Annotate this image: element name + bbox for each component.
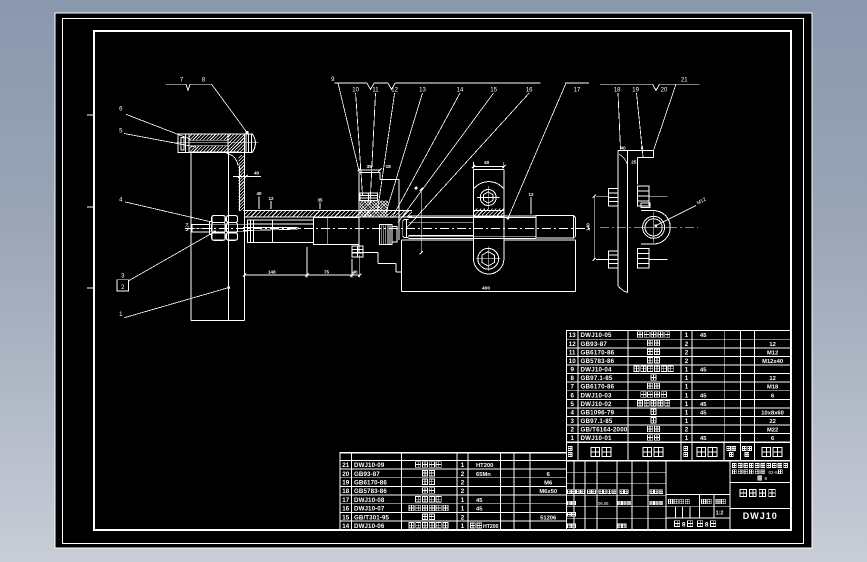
svg-text:35: 35 [367, 164, 373, 170]
svg-text:12: 12 [769, 342, 775, 348]
svg-text:1: 1 [570, 435, 574, 442]
svg-text:9: 9 [570, 367, 574, 374]
svg-text:17: 17 [342, 497, 349, 504]
svg-text:02-5: 02-5 [769, 470, 779, 475]
svg-text:45: 45 [700, 393, 707, 399]
svg-text:18: 18 [614, 88, 621, 94]
svg-text:1:2: 1:2 [716, 511, 724, 517]
svg-text:M6: M6 [544, 481, 553, 487]
svg-text:06.06: 06.06 [598, 501, 609, 506]
svg-text:12: 12 [769, 376, 775, 382]
svg-text:2: 2 [685, 341, 689, 348]
svg-text:16: 16 [526, 88, 533, 94]
svg-text:12: 12 [391, 88, 398, 94]
svg-text:11: 11 [372, 88, 379, 94]
svg-text:DWJ10-03: DWJ10-03 [581, 392, 613, 399]
svg-text:GB6170-86: GB6170-86 [581, 349, 615, 356]
svg-text:12: 12 [269, 196, 275, 201]
svg-text:8: 8 [641, 145, 644, 150]
svg-text:GB5783-86: GB5783-86 [354, 488, 387, 495]
svg-text:DWJ10-05: DWJ10-05 [581, 332, 613, 339]
svg-text:10: 10 [352, 88, 359, 94]
svg-text:DWJ10-09: DWJ10-09 [354, 462, 385, 469]
svg-text:14: 14 [457, 88, 464, 94]
svg-text:40: 40 [353, 269, 359, 274]
svg-text:M6x50: M6x50 [539, 489, 557, 495]
svg-text:19: 19 [342, 480, 349, 487]
svg-text:18: 18 [386, 164, 392, 170]
svg-text:DWJ10-01: DWJ10-01 [581, 435, 613, 442]
svg-text:13: 13 [419, 88, 426, 94]
svg-text:45: 45 [700, 368, 707, 374]
svg-text:DWJ10-04: DWJ10-04 [581, 367, 613, 374]
svg-text:14: 14 [342, 523, 349, 530]
svg-text:65Mn: 65Mn [476, 472, 491, 478]
svg-text:8: 8 [705, 522, 709, 529]
svg-text:2: 2 [461, 480, 465, 487]
svg-text:4: 4 [570, 409, 574, 416]
svg-text:12: 12 [569, 341, 576, 348]
svg-text:DWJ10-07: DWJ10-07 [354, 506, 385, 513]
svg-text:3: 3 [570, 418, 574, 425]
svg-text:10: 10 [569, 358, 576, 365]
svg-text:45: 45 [700, 436, 707, 442]
svg-text:45: 45 [476, 498, 483, 504]
svg-text:40: 40 [254, 171, 260, 176]
svg-text:8: 8 [570, 375, 574, 382]
svg-text:1: 1 [685, 332, 689, 339]
svg-text:1: 1 [461, 462, 465, 469]
svg-text:M22: M22 [767, 428, 778, 434]
svg-text:2: 2 [570, 427, 574, 434]
svg-text:7: 7 [570, 384, 574, 391]
svg-text:2: 2 [461, 488, 465, 495]
svg-text:10x8x60: 10x8x60 [761, 410, 784, 416]
svg-text:25: 25 [631, 159, 637, 164]
svg-text:9: 9 [765, 476, 768, 481]
svg-text:16: 16 [342, 506, 349, 513]
svg-text:11: 11 [569, 349, 576, 356]
svg-text:40: 40 [484, 160, 490, 166]
svg-text:22: 22 [769, 419, 775, 425]
svg-text:20: 20 [342, 471, 349, 478]
svg-text:5: 5 [570, 401, 574, 408]
svg-text:GB5783-86: GB5783-86 [581, 358, 615, 365]
svg-text:15: 15 [490, 88, 497, 94]
svg-text:1: 1 [461, 497, 465, 504]
svg-text:2: 2 [685, 427, 689, 434]
svg-text:12: 12 [529, 192, 535, 197]
svg-text:M24: M24 [185, 222, 190, 231]
svg-text:1: 1 [685, 418, 689, 425]
svg-text:45: 45 [700, 410, 707, 416]
svg-text:21: 21 [681, 78, 688, 84]
svg-text:2: 2 [685, 349, 689, 356]
svg-text:13: 13 [569, 332, 576, 339]
svg-text:1: 1 [685, 409, 689, 416]
svg-text:2: 2 [461, 514, 465, 521]
svg-text:400: 400 [482, 286, 490, 292]
svg-text:1: 1 [461, 523, 465, 530]
svg-text:HT200: HT200 [476, 463, 493, 469]
svg-text:1: 1 [685, 435, 689, 442]
svg-text:GB/T301-95: GB/T301-95 [354, 514, 390, 521]
svg-text:HT200: HT200 [483, 524, 499, 530]
svg-text:45: 45 [476, 507, 483, 513]
svg-text:1: 1 [685, 384, 689, 391]
svg-text:M18: M18 [767, 385, 779, 391]
svg-text:DWJ10-02: DWJ10-02 [581, 401, 613, 408]
svg-text:GB97.1-85: GB97.1-85 [581, 375, 613, 382]
svg-text:M12: M12 [767, 350, 778, 356]
svg-text:8: 8 [682, 522, 686, 529]
svg-text:19: 19 [632, 88, 639, 94]
svg-text:140: 140 [586, 223, 591, 231]
svg-text:17: 17 [574, 88, 581, 94]
svg-text:DWJ10-06: DWJ10-06 [354, 523, 385, 530]
svg-text:20: 20 [661, 88, 668, 94]
svg-text:1: 1 [685, 401, 689, 408]
svg-text:GB93-87: GB93-87 [354, 471, 380, 478]
svg-text:GB1096-79: GB1096-79 [581, 409, 615, 416]
svg-text:40: 40 [621, 145, 627, 150]
svg-text:GB6170-86: GB6170-86 [354, 480, 387, 487]
svg-text:75: 75 [324, 269, 330, 274]
svg-text:GB93-87: GB93-87 [581, 341, 608, 348]
svg-text:45: 45 [700, 333, 707, 339]
svg-text:2: 2 [461, 471, 465, 478]
svg-text:6: 6 [570, 392, 574, 399]
svg-text:DWJ10: DWJ10 [743, 511, 778, 521]
svg-text:18: 18 [342, 488, 349, 495]
svg-text:148: 148 [268, 269, 276, 274]
svg-text:DWJ10-08: DWJ10-08 [354, 497, 385, 504]
svg-text:40: 40 [257, 191, 263, 196]
svg-text:1: 1 [461, 506, 465, 513]
svg-text:1: 1 [685, 375, 689, 382]
svg-text:45: 45 [700, 402, 707, 408]
svg-text:1: 1 [685, 367, 689, 374]
svg-text:GB6170-86: GB6170-86 [581, 384, 615, 391]
svg-text:21: 21 [342, 462, 349, 469]
svg-text:15: 15 [342, 514, 349, 521]
svg-text:2: 2 [685, 358, 689, 365]
svg-text:GB/T6164-2000: GB/T6164-2000 [581, 427, 628, 434]
svg-text:GB97.1-85: GB97.1-85 [581, 418, 613, 425]
svg-text:35: 35 [318, 197, 324, 202]
svg-text:51206: 51206 [540, 515, 557, 521]
svg-text:M12x40: M12x40 [762, 359, 783, 365]
svg-text:1: 1 [685, 392, 689, 399]
